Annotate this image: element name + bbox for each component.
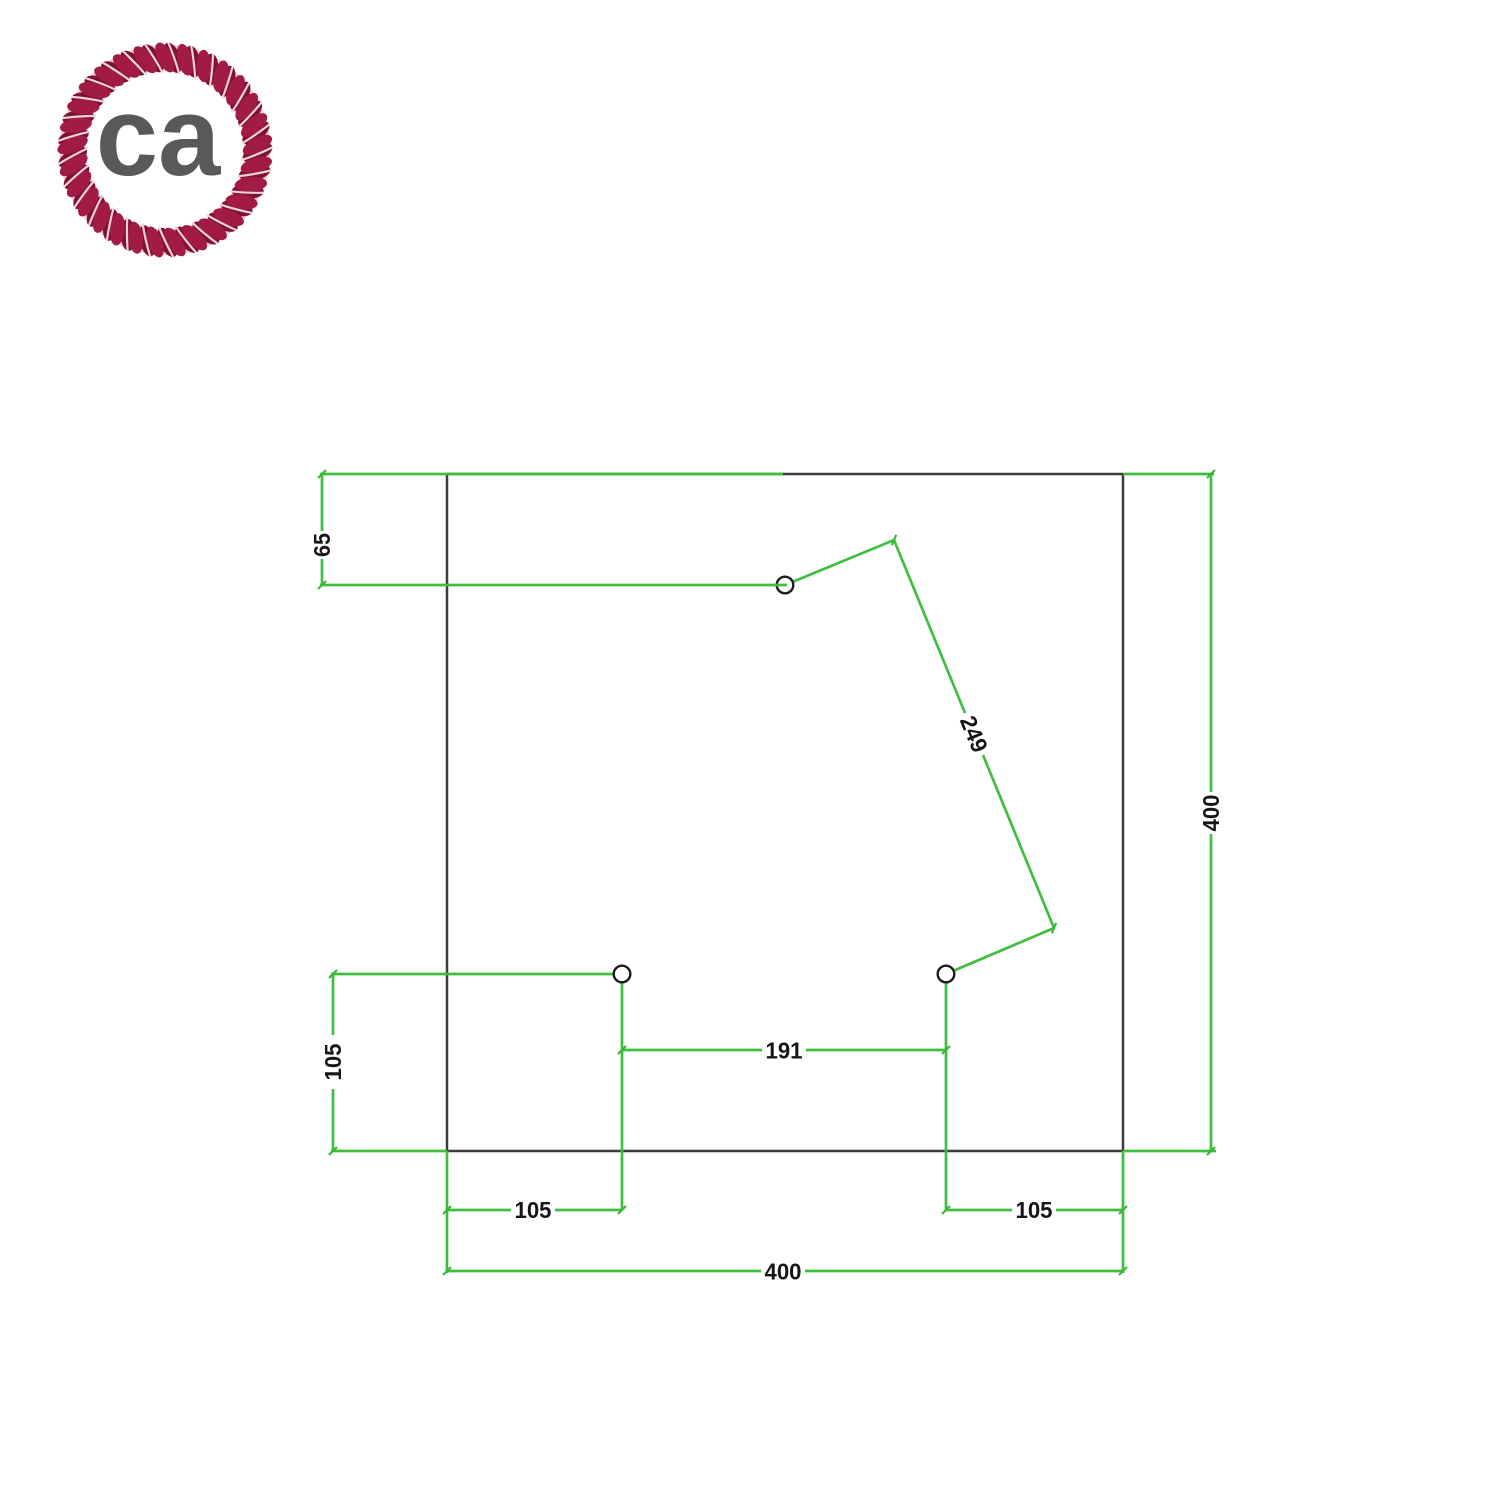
svg-text:105: 105	[320, 1043, 346, 1080]
svg-text:105: 105	[515, 1197, 552, 1223]
svg-text:ca: ca	[96, 74, 221, 199]
svg-text:105: 105	[1016, 1197, 1053, 1223]
svg-text:400: 400	[1198, 795, 1224, 832]
svg-text:191: 191	[766, 1038, 803, 1064]
svg-text:65: 65	[309, 533, 335, 557]
svg-text:400: 400	[765, 1259, 802, 1285]
